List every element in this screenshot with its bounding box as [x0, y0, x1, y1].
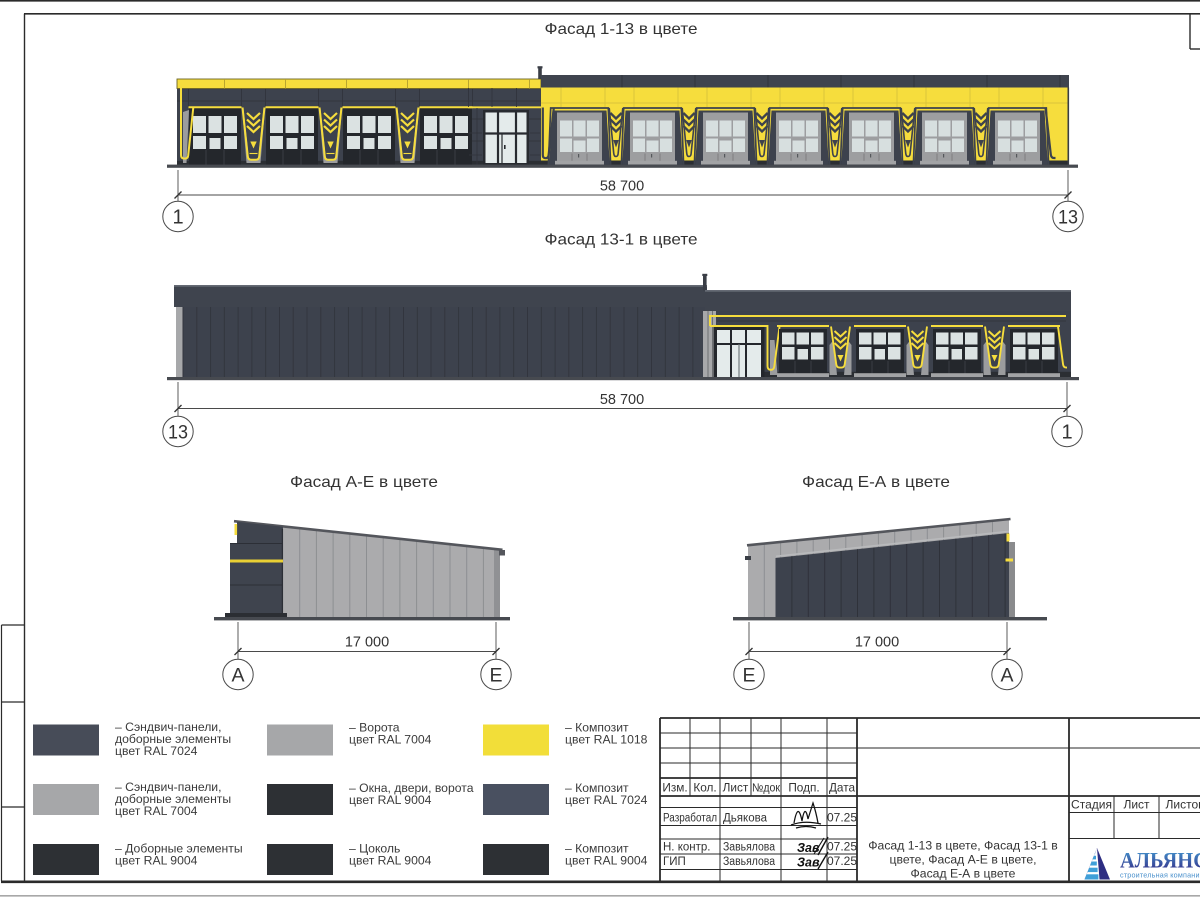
svg-text:07.25: 07.25: [827, 811, 857, 825]
svg-text:13: 13: [168, 423, 188, 444]
svg-text:Зав: Зав: [797, 856, 820, 870]
svg-text:Е: Е: [489, 665, 502, 687]
svg-text:1: 1: [1061, 422, 1072, 444]
svg-text:цвет RAL 7004: цвет RAL 7004: [349, 733, 432, 747]
svg-text:Разработал: Разработал: [663, 813, 717, 825]
svg-text:Дьякова: Дьякова: [723, 813, 768, 825]
svg-text:цвет RAL 7024: цвет RAL 7024: [565, 793, 648, 807]
svg-text:Завьялова: Завьялова: [723, 842, 776, 854]
svg-text:цвет RAL 9004: цвет RAL 9004: [565, 854, 648, 868]
svg-text:58 700: 58 700: [600, 179, 644, 195]
svg-text:13: 13: [1058, 208, 1078, 229]
svg-text:Фасад 1-13 в цвете, Фасад 13-1: Фасад 1-13 в цвете, Фасад 13-1 в: [868, 839, 1057, 853]
svg-text:1: 1: [172, 207, 183, 229]
svg-text:Фасад Е-А в цвете: Фасад Е-А в цвете: [802, 474, 950, 491]
svg-text:Фасад Е-А в цвете: Фасад Е-А в цвете: [911, 867, 1016, 881]
svg-text:Кол.: Кол.: [693, 781, 716, 795]
svg-text:цвет RAL 9004: цвет RAL 9004: [115, 854, 198, 868]
svg-text:17 000: 17 000: [345, 635, 389, 651]
svg-text:Подп.: Подп.: [788, 781, 819, 795]
svg-text:Стадия: Стадия: [1071, 798, 1112, 812]
svg-text:07.25: 07.25: [827, 840, 857, 854]
svg-text:Изм.: Изм.: [662, 781, 687, 795]
svg-text:58 700: 58 700: [600, 392, 644, 408]
svg-text:цвете, Фасад А-Е в цвете,: цвете, Фасад А-Е в цвете,: [890, 853, 1037, 867]
svg-text:цвет RAL 9004: цвет RAL 9004: [349, 854, 432, 868]
svg-text:цвет RAL 9004: цвет RAL 9004: [349, 793, 432, 807]
svg-text:Фасад 13-1 в цвете: Фасад 13-1 в цвете: [545, 232, 698, 249]
svg-text:Лист: Лист: [1123, 798, 1150, 812]
svg-text:Завьялова: Завьялова: [723, 856, 776, 868]
svg-text:07.25: 07.25: [827, 854, 857, 868]
svg-text:строительная компания: строительная компания: [1120, 871, 1200, 880]
svg-text:Е: Е: [742, 665, 755, 687]
svg-text:Фасад 1-13 в цвете: Фасад 1-13 в цвете: [545, 21, 698, 38]
svg-text:Листов: Листов: [1166, 798, 1200, 812]
svg-text:Фасад А-Е в цвете: Фасад А-Е в цвете: [290, 474, 438, 491]
svg-text:цвет RAL 7024: цвет RAL 7024: [115, 744, 198, 758]
svg-text:Дата: Дата: [829, 781, 856, 795]
svg-text:А: А: [1000, 665, 1013, 687]
svg-text:Лист: Лист: [723, 781, 749, 795]
svg-text:№док: №док: [752, 781, 781, 795]
svg-text:цвет RAL 1018: цвет RAL 1018: [565, 733, 648, 747]
svg-text:АЛЬЯНС: АЛЬЯНС: [1120, 848, 1200, 873]
svg-text:Н. контр.: Н. контр.: [663, 842, 710, 854]
svg-text:ГИП: ГИП: [663, 856, 686, 868]
svg-text:А: А: [231, 665, 244, 687]
svg-text:Зав: Зав: [797, 841, 820, 855]
svg-text:17 000: 17 000: [855, 635, 899, 651]
svg-text:цвет RAL 7004: цвет RAL 7004: [115, 804, 198, 818]
